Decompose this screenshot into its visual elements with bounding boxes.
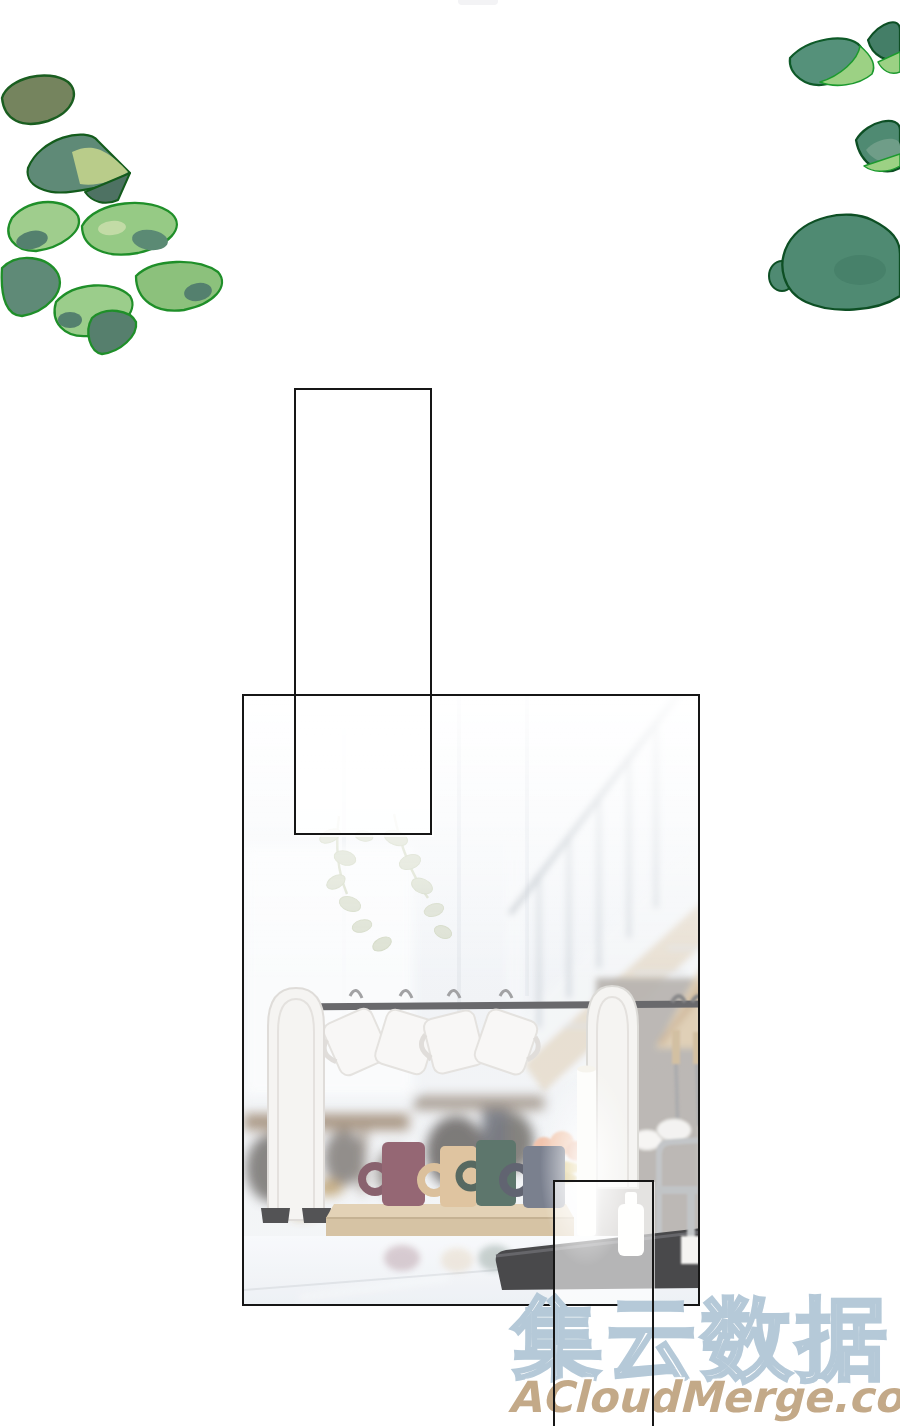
- leaf-olive: [2, 75, 74, 123]
- tall-empty-panel: [294, 388, 432, 835]
- foliage-top-left: [0, 0, 235, 356]
- small-overlap-panel: [553, 1180, 654, 1426]
- comic-page: 集云数据 ACloudMerge.com: [0, 0, 900, 1426]
- leaf-bottom-shade: [834, 255, 886, 285]
- page-top-artifact: [458, 0, 498, 5]
- foliage-top-right: [760, 0, 900, 320]
